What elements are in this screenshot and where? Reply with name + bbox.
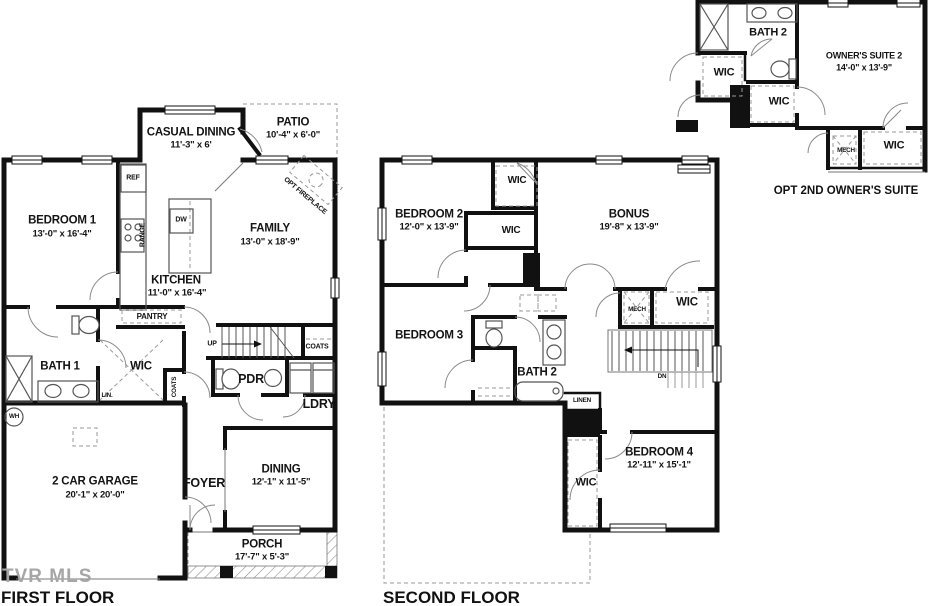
dim-label-bonus: 19'-8" x 13'-9" xyxy=(599,222,658,232)
floorplan-drawing xyxy=(0,0,930,606)
owners-suite-title: OPT 2ND OWNER'S SUITE xyxy=(774,185,919,197)
dim-label-patio: 10'-4" x 6'-0" xyxy=(266,130,320,140)
room-label-os-bath2: BATH 2 xyxy=(749,28,787,39)
room-label-foyer: FOYER xyxy=(183,477,225,490)
room-label-wic-bedroom4: WIC xyxy=(576,478,597,489)
room-label-wic-top: WIC xyxy=(508,176,527,186)
bath2-tub xyxy=(515,382,563,401)
label-pantry: PANTRY xyxy=(137,313,168,321)
room-label-bonus: BONUS xyxy=(609,209,650,221)
room-label-bedroom1: BEDROOM 1 xyxy=(28,215,96,227)
room-label-dining: DINING xyxy=(261,464,300,476)
os-toilet xyxy=(771,61,789,77)
bath2-toilet xyxy=(486,329,502,347)
dim-label-bedroom2: 12'-0" x 13'-9" xyxy=(399,222,458,232)
washer xyxy=(290,363,311,393)
room-label-bedroom2: BEDROOM 2 xyxy=(395,209,463,221)
label-wh: WH xyxy=(9,414,19,420)
room-label-bath2-2f: BATH 2 xyxy=(517,367,556,379)
pdr-sink xyxy=(265,370,282,387)
dim-label-bedroom4: 12'-11" x 15'-1" xyxy=(627,460,691,470)
label-os-mech: MECH xyxy=(837,148,855,154)
stairs-down xyxy=(612,331,703,371)
dim-label-owners-suite2: 14'-0" x 13'-9" xyxy=(836,64,892,73)
label-mech-2f: MECH xyxy=(628,307,646,313)
os-vanity xyxy=(747,4,797,22)
dim-label-casual-dining: 11'-3" x 6' xyxy=(170,140,211,150)
label-dw: DW xyxy=(175,217,186,224)
dim-label-dining: 12'-1" x 11'-5" xyxy=(252,477,311,487)
room-label-wic-right: WIC xyxy=(676,297,698,309)
first-floor-title: FIRST FLOOR xyxy=(1,588,114,606)
room-label-wic1: WIC xyxy=(130,361,152,373)
label-ref: REF xyxy=(126,175,139,182)
label-up: UP xyxy=(207,341,216,348)
room-label-owners-suite2: OWNER'S SUITE 2 xyxy=(826,52,902,61)
label-lin: LIN. xyxy=(101,393,112,399)
label-dn: DN xyxy=(658,374,667,380)
label-range: RANGE xyxy=(140,223,147,247)
dim-label-family: 13'-0" x 18'-9" xyxy=(240,237,299,247)
room-label-os-wic-bottom: WIC xyxy=(884,141,905,152)
room-label-garage: 2 CAR GARAGE xyxy=(52,476,138,488)
room-label-casual-dining: CASUAL DINING xyxy=(147,127,236,139)
room-label-os-wic-mid: WIC xyxy=(769,97,790,108)
dim-label-kitchen: 11'-0" x 16'-4" xyxy=(148,288,207,298)
first-floor-group xyxy=(4,104,342,579)
dim-label-bedroom1: 13'-0" x 16'-4" xyxy=(32,229,91,239)
label-coats-hall: COATS xyxy=(172,377,178,398)
room-label-bath1: BATH 1 xyxy=(40,361,79,373)
room-label-ldry: LDRY xyxy=(303,398,336,411)
room-label-pdr: PDR xyxy=(238,373,264,386)
mls-watermark: TVR MLS xyxy=(2,566,92,588)
second-floor-title: SECOND FLOOR xyxy=(383,588,520,606)
bath2-vanity xyxy=(543,320,565,365)
room-label-bedroom4: BEDROOM 4 xyxy=(625,447,693,459)
dryer xyxy=(313,363,334,393)
label-coats-stairs: COATS xyxy=(306,344,329,351)
room-label-porch: PORCH xyxy=(242,539,283,551)
toilet xyxy=(79,317,99,334)
room-label-os-wic-left: WIC xyxy=(714,68,735,79)
room-label-wic-mid: WIC xyxy=(502,226,521,236)
room-label-family: FAMILY xyxy=(250,223,290,235)
label-linen: LINEN xyxy=(573,398,591,404)
room-label-bedroom3: BEDROOM 3 xyxy=(395,330,463,342)
room-label-patio: PATIO xyxy=(277,117,309,129)
dim-label-garage: 20'-1" x 20'-0" xyxy=(65,490,124,500)
room-label-kitchen: KITCHEN xyxy=(151,275,201,287)
dim-label-porch: 17'-7" x 5'-3" xyxy=(235,552,289,562)
floor-plan-image: CASUAL DINING 11'-3" x 6' PATIO 10'-4" x… xyxy=(0,0,930,606)
